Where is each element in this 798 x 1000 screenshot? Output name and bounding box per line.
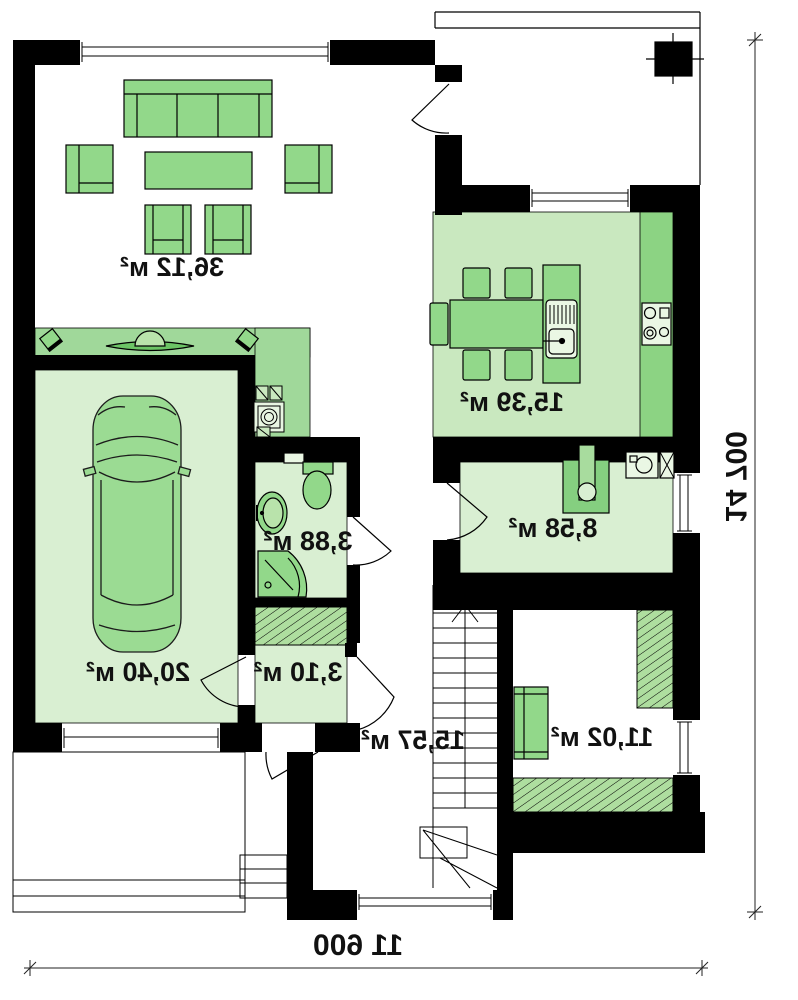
living-room-area-label: 36,12 м² (92, 254, 252, 281)
chair-icon (463, 268, 490, 298)
floor-plan: 36,12 м² 15,39 м² 8,58 м² 3,88 м² 3,10 м… (0, 0, 798, 1000)
driveway (13, 752, 287, 912)
car-icon (83, 396, 190, 652)
hall-area-label: 3,10 м² (218, 659, 378, 686)
bedroom-wardrobe-bottom (513, 778, 673, 812)
utility-area-label: 8,58 м² (473, 515, 633, 542)
corridor-area-label: 15,57 м² (333, 727, 493, 754)
height-dimension-label: 14 700 (718, 397, 750, 557)
garage-door-opening (64, 728, 218, 748)
living-room-furniture (66, 80, 332, 254)
chair-icon (430, 303, 448, 345)
hall-wardrobe (255, 607, 347, 645)
sink-icon (543, 300, 577, 358)
kitchen-area-label: 15,39 м² (432, 389, 592, 416)
entry-porch (435, 12, 704, 185)
bedroom-area-label: 11,02 м² (522, 724, 682, 751)
corridor-window (359, 894, 491, 910)
stairs-winders (420, 827, 497, 888)
chair-icon (505, 268, 532, 298)
stove-icon (642, 303, 671, 345)
chair-icon (505, 350, 532, 380)
floor-plan-drawing (0, 0, 798, 1000)
bedroom-wardrobe-side (637, 610, 673, 708)
bathroom-area-label: 3,88 м² (228, 528, 388, 555)
width-dimension-line (24, 960, 708, 976)
living-room-window (82, 42, 328, 62)
lounge-chair-icon (205, 205, 251, 254)
chair-icon (463, 350, 490, 380)
sofa-icon (124, 80, 272, 137)
dining-table-icon (450, 300, 543, 348)
entry-steps (240, 855, 287, 898)
garage-area-label: 20,40 м² (58, 659, 218, 686)
washing-machine-icon (626, 452, 658, 478)
armchair-icon (285, 145, 332, 193)
entry-door (412, 84, 449, 133)
cabinet-icon (660, 452, 674, 478)
kitchen-window (532, 189, 628, 207)
coffee-table-icon (145, 152, 252, 189)
porch-column (655, 42, 692, 76)
armchair-icon (66, 145, 113, 193)
width-dimension-label: 11 600 (278, 931, 438, 961)
utility-window (677, 475, 692, 531)
lounge-chair-icon (145, 205, 191, 254)
